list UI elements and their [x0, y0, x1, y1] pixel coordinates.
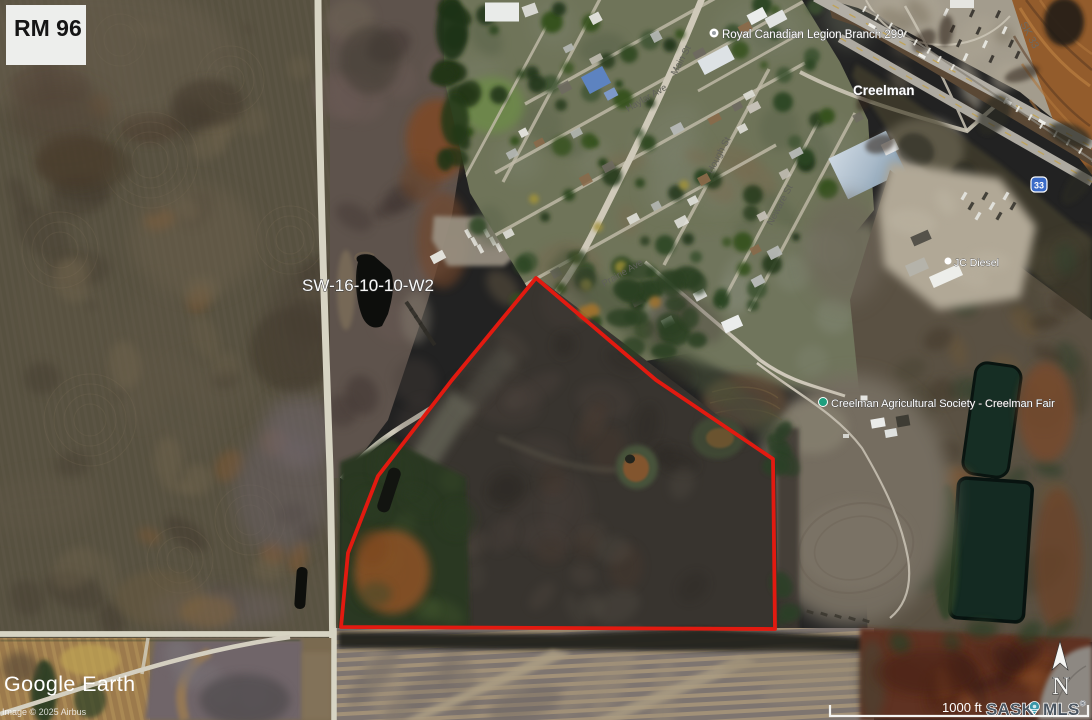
svg-text:Image © 2025 Airbus: Image © 2025 Airbus [2, 707, 87, 717]
svg-text:MLS: MLS [1043, 700, 1079, 719]
svg-text:Royal Canadian Legion Branch 2: Royal Canadian Legion Branch 299 [722, 29, 904, 41]
svg-text:JC Diesel: JC Diesel [954, 257, 999, 269]
svg-text:N: N [1052, 673, 1070, 700]
svg-text:SW-16-10-10-W2: SW-16-10-10-W2 [302, 276, 434, 295]
svg-text:®: ® [1080, 699, 1086, 708]
svg-text:1000 ft: 1000 ft [942, 700, 982, 715]
svg-text:Google Earth: Google Earth [4, 672, 136, 696]
svg-text:SASK: SASK [986, 700, 1035, 719]
svg-text:Creelman: Creelman [853, 83, 915, 98]
svg-text:Creelman Agricultural Society: Creelman Agricultural Society - Creelman… [831, 398, 1055, 410]
svg-text:33: 33 [1034, 181, 1044, 191]
svg-text:RM 96: RM 96 [14, 15, 82, 41]
